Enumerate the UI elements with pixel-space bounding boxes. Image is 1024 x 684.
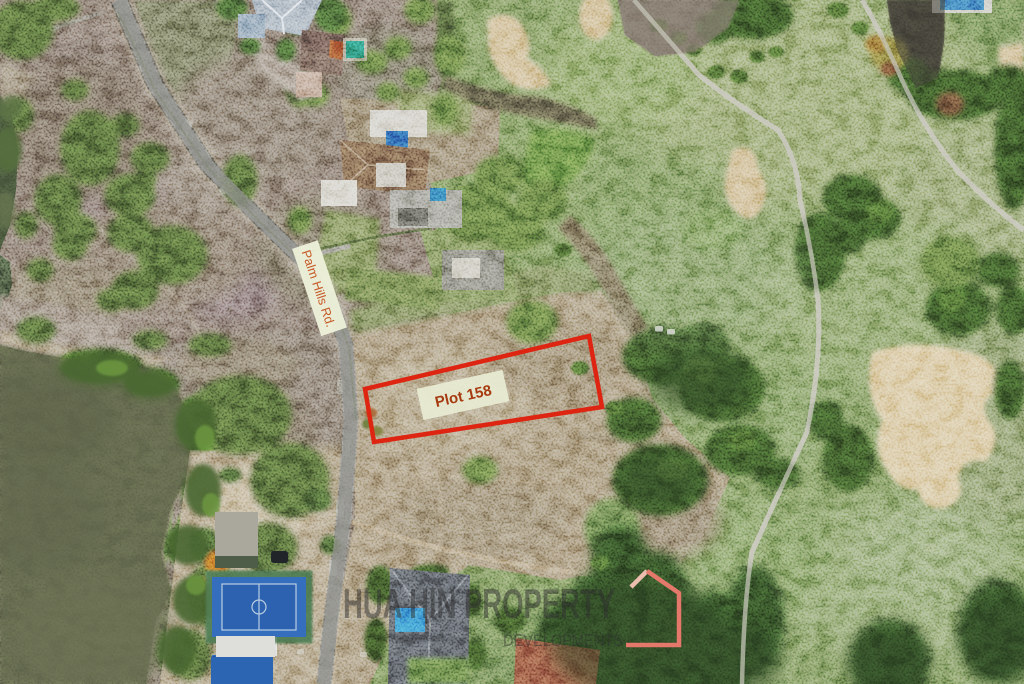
svg-text:HUA HIN PROPERTY: HUA HIN PROPERTY — [343, 580, 615, 627]
svg-text:DEVELOPMENTS: DEVELOPMENTS — [503, 631, 623, 650]
